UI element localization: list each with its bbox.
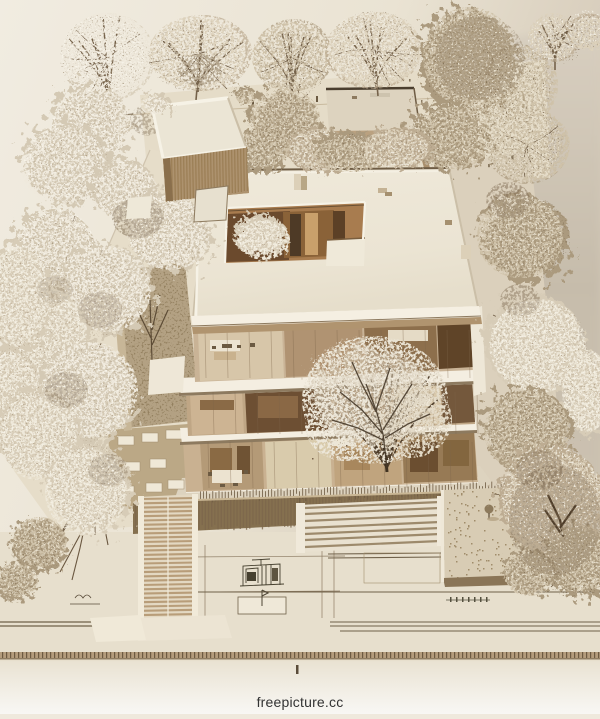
svg-text:freepicture.cc: freepicture.cc	[257, 694, 344, 710]
